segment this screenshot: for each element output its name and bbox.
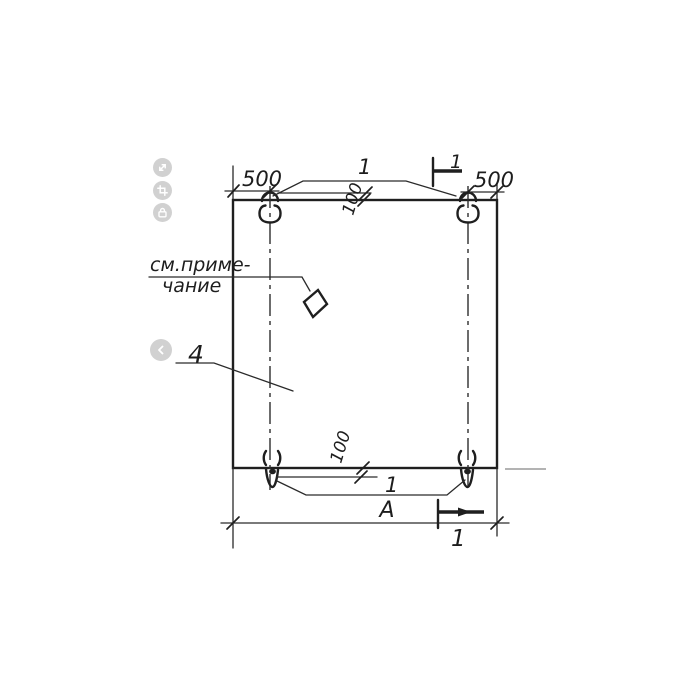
expand-icon bbox=[157, 162, 168, 173]
part-callout: 4 bbox=[176, 340, 293, 391]
part-text: 4 bbox=[188, 340, 204, 369]
note-text-line2: чание bbox=[162, 275, 221, 297]
section-mark-bottom: 1 bbox=[438, 500, 484, 552]
section-text-top: 1 bbox=[450, 151, 462, 173]
note-callout: см.приме- чание bbox=[149, 254, 327, 317]
dimension-overall-width: А bbox=[221, 468, 509, 548]
lock-button[interactable] bbox=[153, 203, 172, 222]
back-button[interactable] bbox=[150, 339, 172, 361]
section-text-bottom: 1 bbox=[451, 526, 466, 552]
drawing-viewer: 500 500 1 100 1 см.приме- bbox=[0, 0, 700, 700]
dim-text-100-bottom: 100 bbox=[327, 429, 356, 466]
note-text-line1: см.приме- bbox=[150, 254, 251, 276]
panel-outline bbox=[233, 200, 497, 468]
dim-text-500-left: 500 bbox=[242, 167, 282, 191]
lock-icon bbox=[157, 207, 168, 218]
callout-text-bottom: 1 bbox=[385, 473, 398, 497]
dimension-100-bottom: 100 bbox=[277, 429, 377, 483]
crop-icon bbox=[157, 185, 168, 196]
dim-text-100-top: 100 bbox=[339, 181, 368, 218]
dim-text-500-right: 500 bbox=[474, 168, 514, 192]
expand-button[interactable] bbox=[153, 158, 172, 177]
chevron-left-icon bbox=[155, 344, 167, 356]
lifting-loop-bottom-right bbox=[459, 451, 476, 487]
technical-drawing: 500 500 1 100 1 см.приме- bbox=[0, 0, 700, 700]
crop-button[interactable] bbox=[153, 181, 172, 200]
callout-text-top: 1 bbox=[358, 155, 371, 179]
diamond-mark bbox=[304, 290, 327, 317]
section-mark-top: 1 bbox=[433, 151, 462, 186]
dim-text-overall: А bbox=[377, 498, 394, 523]
